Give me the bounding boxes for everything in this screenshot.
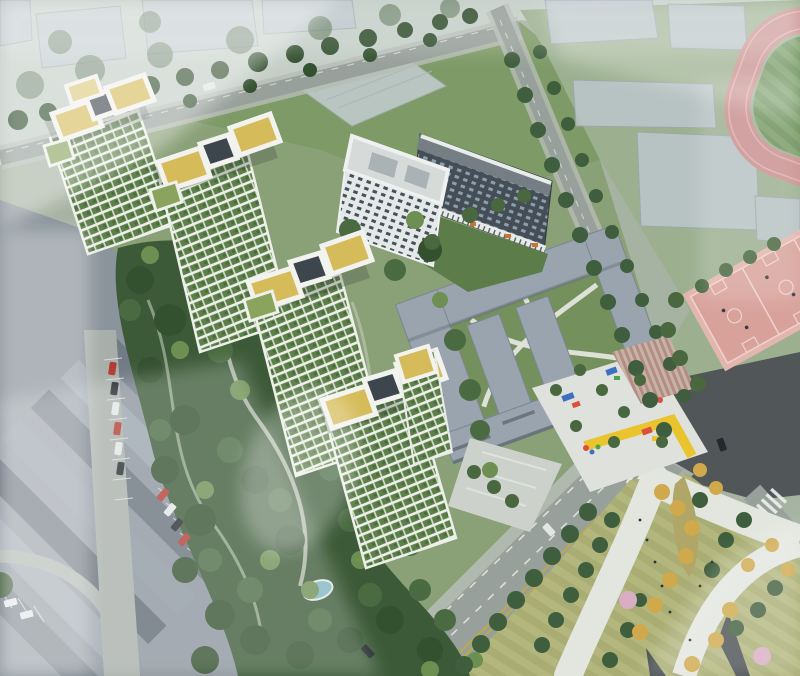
roof-core [290,253,329,286]
aerial-rendering: Aerial rendering of a green residential … [0,0,800,676]
roof-core [200,135,237,167]
roof-core [364,371,403,404]
rendering-canvas [0,0,800,676]
